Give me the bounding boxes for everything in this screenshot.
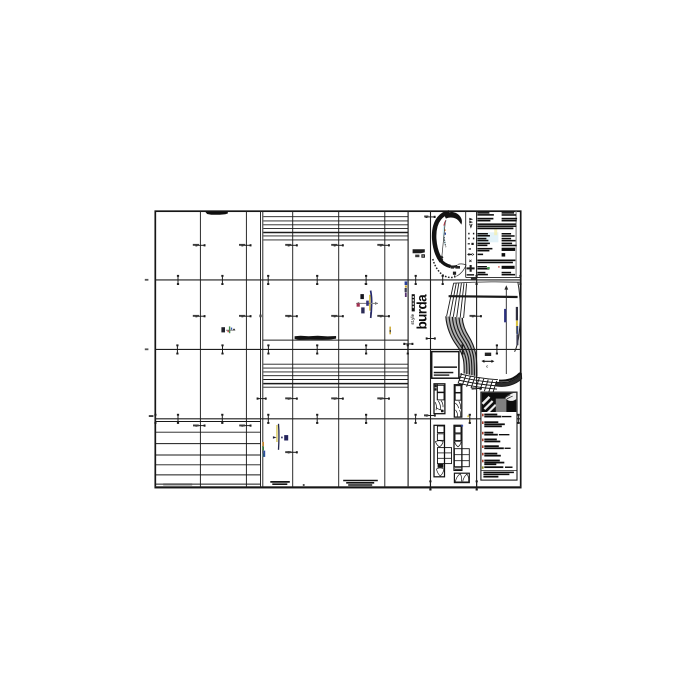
svg-text:burda: burda	[415, 294, 430, 330]
svg-text:c: c	[486, 364, 488, 368]
svg-text:st.yle: st.yle	[410, 313, 415, 324]
